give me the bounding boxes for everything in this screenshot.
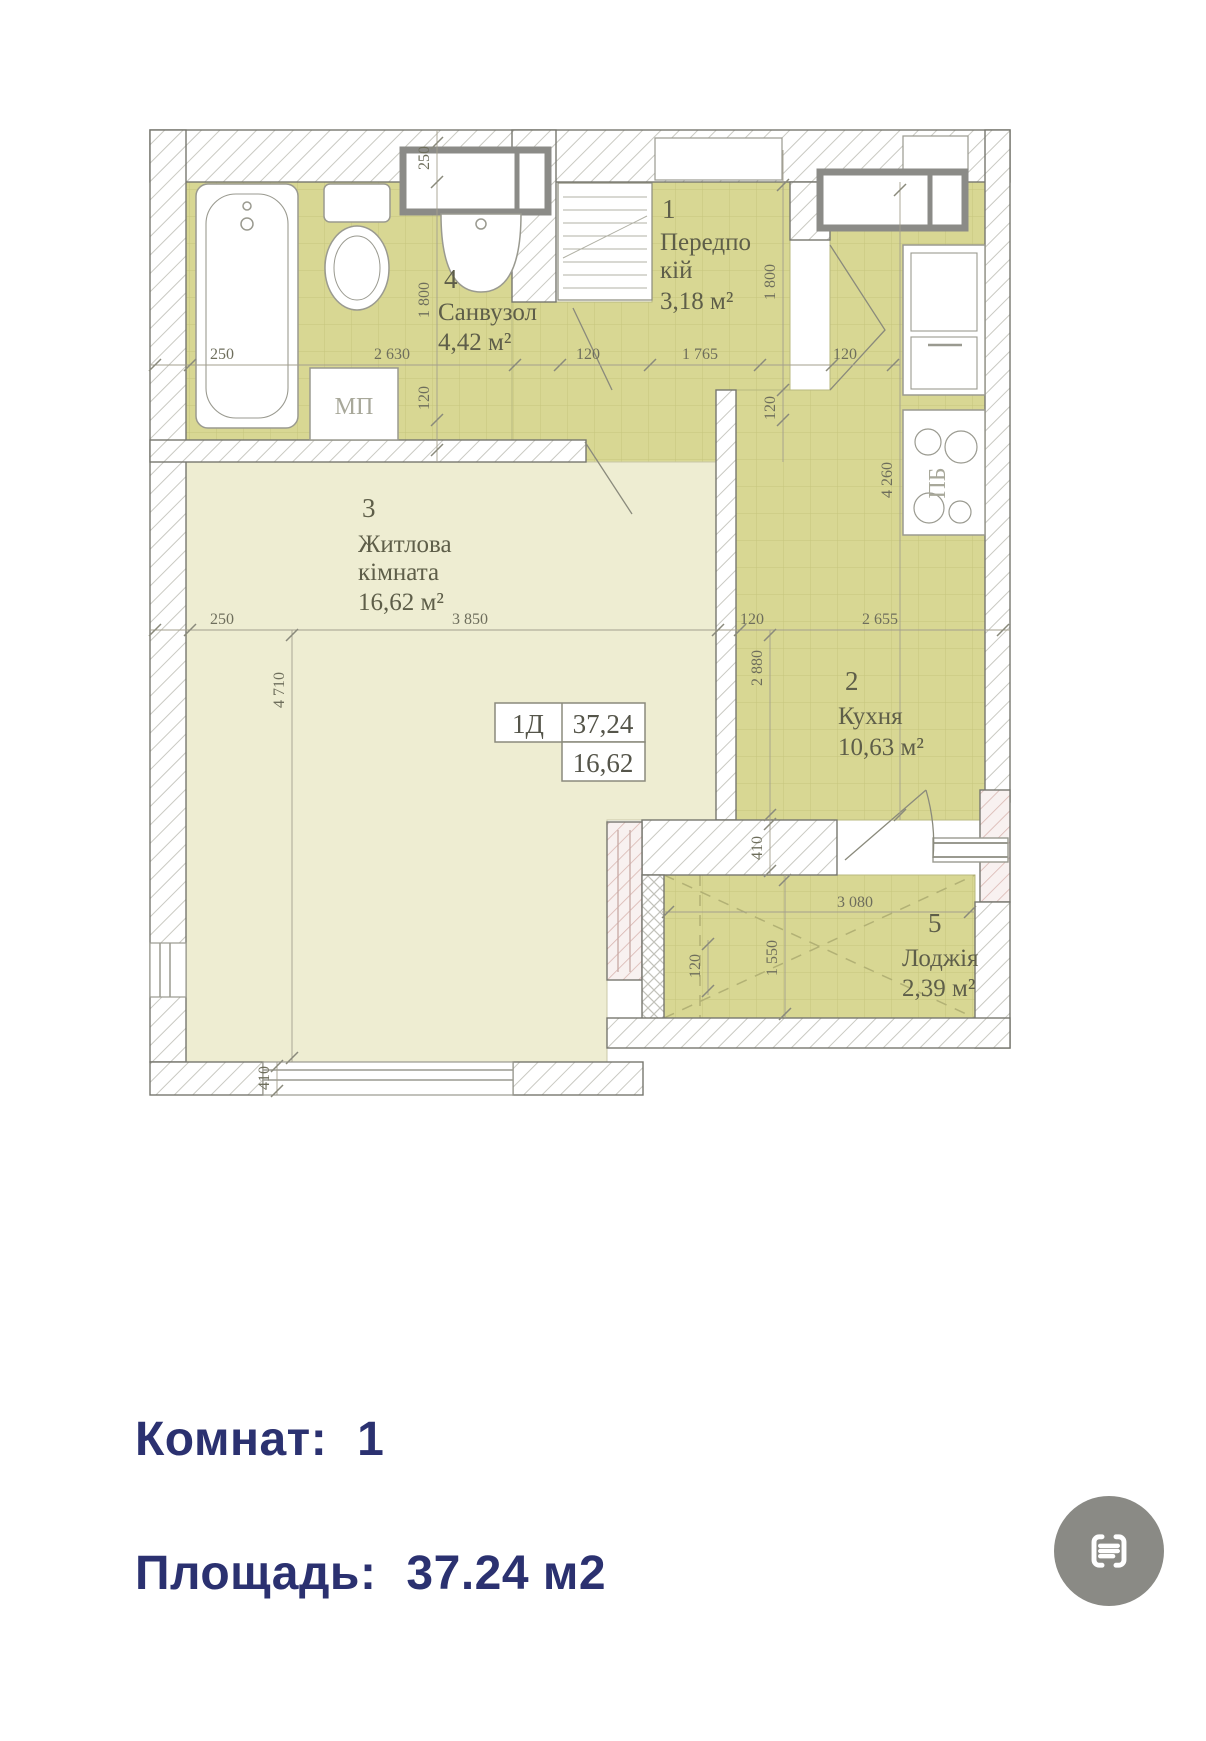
dim-living-height: 4 710 (271, 672, 288, 708)
area-label: Площадь: (135, 1546, 376, 1601)
rooms-value: 1 (357, 1412, 384, 1467)
loggia-window (933, 838, 1008, 862)
rooms-summary: Комнат: 1 (135, 1412, 384, 1467)
bathroom-name: Санвузол (438, 299, 537, 326)
bathtub-faucet (243, 202, 251, 210)
scan-text-button[interactable] (1054, 1496, 1164, 1606)
kitchen-name: Кухня (838, 703, 903, 730)
dim-hall-width: 1 765 (682, 346, 718, 363)
unit-total-area: 37,24 (573, 709, 634, 739)
shaft-niche-right (903, 136, 968, 172)
dim-kitchen-height: 4 260 (879, 462, 896, 498)
kitchen-window (820, 172, 965, 228)
listing-page: 250 1 800 120 250 2 630 120 1 765 120 1 … (0, 0, 1206, 1741)
dim-bath-offset: 120 (416, 386, 433, 410)
dim-loggia-offset: 120 (687, 954, 704, 978)
kitchen-number: 2 (845, 666, 859, 696)
loggia-name: Лоджія (902, 945, 979, 972)
unit-code: 1Д (512, 709, 544, 739)
dim-wall-left: 250 (210, 611, 234, 628)
unit-living-area: 16,62 (573, 748, 634, 778)
dim-loggia-wall: 410 (749, 836, 766, 860)
dim-hall-offset2: 120 (762, 396, 779, 420)
toilet-tank (324, 184, 390, 222)
rooms-label: Комнат: (135, 1412, 327, 1467)
fridge (903, 245, 985, 395)
living-bottom-window (263, 1062, 513, 1095)
hallway-area: 3,18 м² (660, 288, 733, 315)
kitchen-area: 10,63 м² (838, 734, 924, 761)
wall-bottom-left (150, 1062, 263, 1095)
hallway-name: Передпо (660, 229, 751, 256)
wall-bottom-mid (513, 1062, 643, 1095)
area-value: 37.24 м2 (406, 1546, 606, 1601)
dim-hall-height: 1 800 (762, 264, 779, 300)
left-wall-window (150, 943, 186, 997)
wall-loggia-corner (642, 875, 664, 1020)
wall-bath-bottom (150, 440, 586, 462)
dim-bath-width: 2 630 (374, 346, 410, 363)
wall-left (150, 130, 186, 1062)
sink-faucet (476, 219, 486, 229)
dim-hall-offset: 120 (576, 346, 600, 363)
floor-plan: 250 1 800 120 250 2 630 120 1 765 120 1 … (0, 0, 1206, 1160)
scan-text-icon (1078, 1520, 1140, 1582)
closet (558, 183, 652, 300)
pier-loggia-left (607, 822, 642, 980)
living-name2: кімната (358, 559, 439, 586)
living-name: Житлова (358, 531, 452, 558)
wall-kitchen-loggia (642, 820, 837, 875)
wall-kitchen-living (716, 390, 736, 820)
dim-bath-height: 1 800 (416, 282, 433, 318)
dim-kitchen-inner: 2 880 (749, 650, 766, 686)
dim-tub-width: 250 (210, 346, 234, 363)
dim-living-width: 3 850 (452, 611, 488, 628)
dim-bottom-offset: 410 (256, 1066, 273, 1090)
living-area: 16,62 м² (358, 589, 444, 616)
dim-loggia-height: 1 550 (764, 940, 781, 976)
bathroom-number: 4 (444, 264, 458, 294)
dim-kitchen-door: 120 (833, 346, 857, 363)
dim-top-wall: 250 (416, 146, 433, 170)
hallway-name2: кій (660, 257, 692, 284)
area-summary: Площадь: 37.24 м2 (135, 1546, 606, 1601)
loggia-area: 2,39 м² (902, 975, 975, 1002)
wall-loggia-bottom (607, 1018, 1010, 1048)
stove-label: ПБ (925, 467, 951, 498)
wall-right (985, 130, 1010, 802)
bathroom-area: 4,42 м² (438, 329, 511, 356)
living-number: 3 (362, 493, 376, 523)
dim-wall-gap: 120 (740, 611, 764, 628)
shaft-niche (655, 138, 782, 180)
hallway-number: 1 (662, 194, 676, 224)
dim-loggia-width: 3 080 (837, 894, 873, 911)
loggia-number: 5 (928, 908, 942, 938)
dim-kitchen-width: 2 655 (862, 611, 898, 628)
washing-machine-label: МП (335, 394, 374, 420)
